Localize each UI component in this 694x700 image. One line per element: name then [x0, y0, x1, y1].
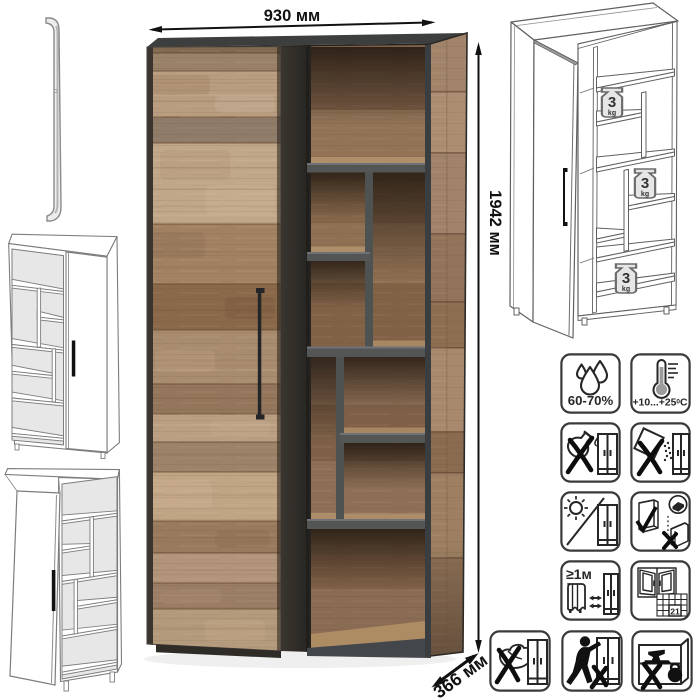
svg-text:kg: kg — [622, 286, 630, 293]
svg-text:3: 3 — [622, 270, 630, 287]
svg-text:3: 3 — [608, 94, 616, 111]
svg-text:≥1м: ≥1м — [566, 566, 592, 582]
svg-text:+10...+250C: +10...+250C — [632, 398, 688, 409]
svg-text:60-70%: 60-70% — [568, 393, 614, 408]
svg-text:21: 21 — [670, 607, 680, 617]
svg-text:366 мм: 366 мм — [430, 650, 492, 700]
svg-text:kg: kg — [641, 191, 649, 198]
svg-text:930 мм: 930 мм — [264, 7, 321, 25]
svg-text:3: 3 — [641, 175, 649, 192]
svg-text:kg: kg — [608, 110, 616, 117]
